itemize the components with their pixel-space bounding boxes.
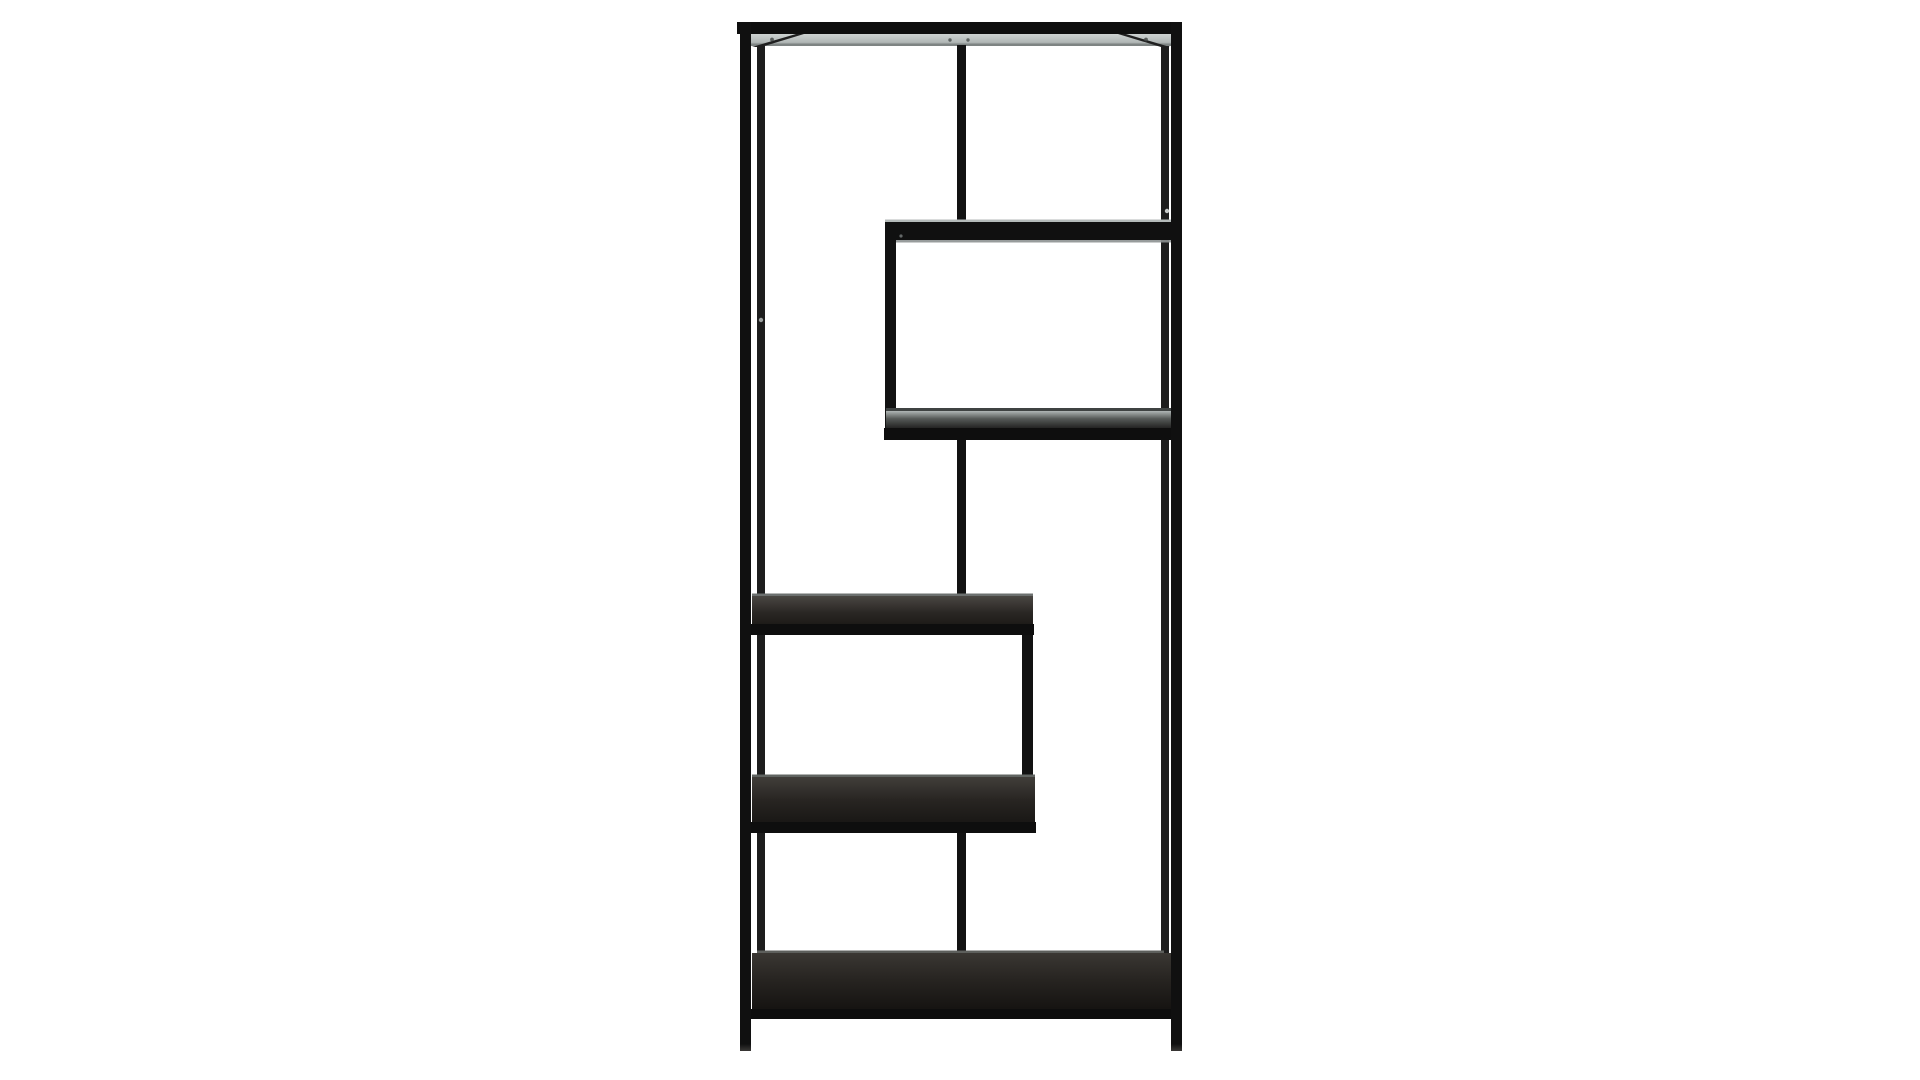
top-strip-screw-3 — [966, 38, 969, 41]
shelf-2-bottom-edge — [885, 240, 1173, 243]
shelf-4-back-edge — [752, 594, 1033, 597]
shelf-3-wood-top — [886, 411, 1172, 428]
shelf-5-wood-top — [752, 777, 1035, 823]
bottom-shelf-wood-top — [752, 953, 1171, 1010]
shelf-2-corner-screw — [899, 234, 902, 237]
top-strip-screw-2 — [948, 38, 951, 41]
top-frame-bar — [737, 22, 1182, 34]
divider-bottom-center — [957, 833, 966, 953]
shelf-4-front-bar — [750, 624, 1034, 635]
divider-middle-center — [957, 440, 966, 594]
shelf-3-back-edge — [886, 408, 1172, 411]
shelf-2-top-edge — [885, 220, 1173, 223]
back-post-right — [1161, 44, 1169, 953]
shelf-pin-hole-right — [1165, 209, 1169, 213]
shelf-5-front-bar — [750, 822, 1036, 833]
bottom-shelf-back-edge — [757, 951, 1164, 954]
shelf-2-frame-bar — [885, 222, 1173, 240]
bottom-shelf-front-bar — [742, 1009, 1182, 1019]
shelf-4-wood-top — [752, 596, 1033, 625]
lower-cube-right-post — [1022, 635, 1033, 777]
bookcase-illustration — [0, 0, 1920, 1080]
upper-cube-left-post — [885, 240, 896, 430]
leg-tip-right — [1171, 1044, 1182, 1051]
shelf-3-front-bar — [884, 428, 1173, 440]
leg-tip-left — [740, 1044, 751, 1051]
front-post-right — [1171, 22, 1182, 1051]
top-strip-screw-1 — [770, 38, 774, 42]
shelf-pin-hole-left — [759, 318, 763, 322]
shelf-5-back-edge — [752, 775, 1035, 778]
front-post-left — [740, 22, 751, 1051]
product-photo-bookcase — [0, 0, 1920, 1080]
top-strip-screw-4 — [1144, 38, 1148, 42]
divider-top-center — [957, 45, 966, 224]
top-shelf-underside — [751, 34, 1171, 45]
